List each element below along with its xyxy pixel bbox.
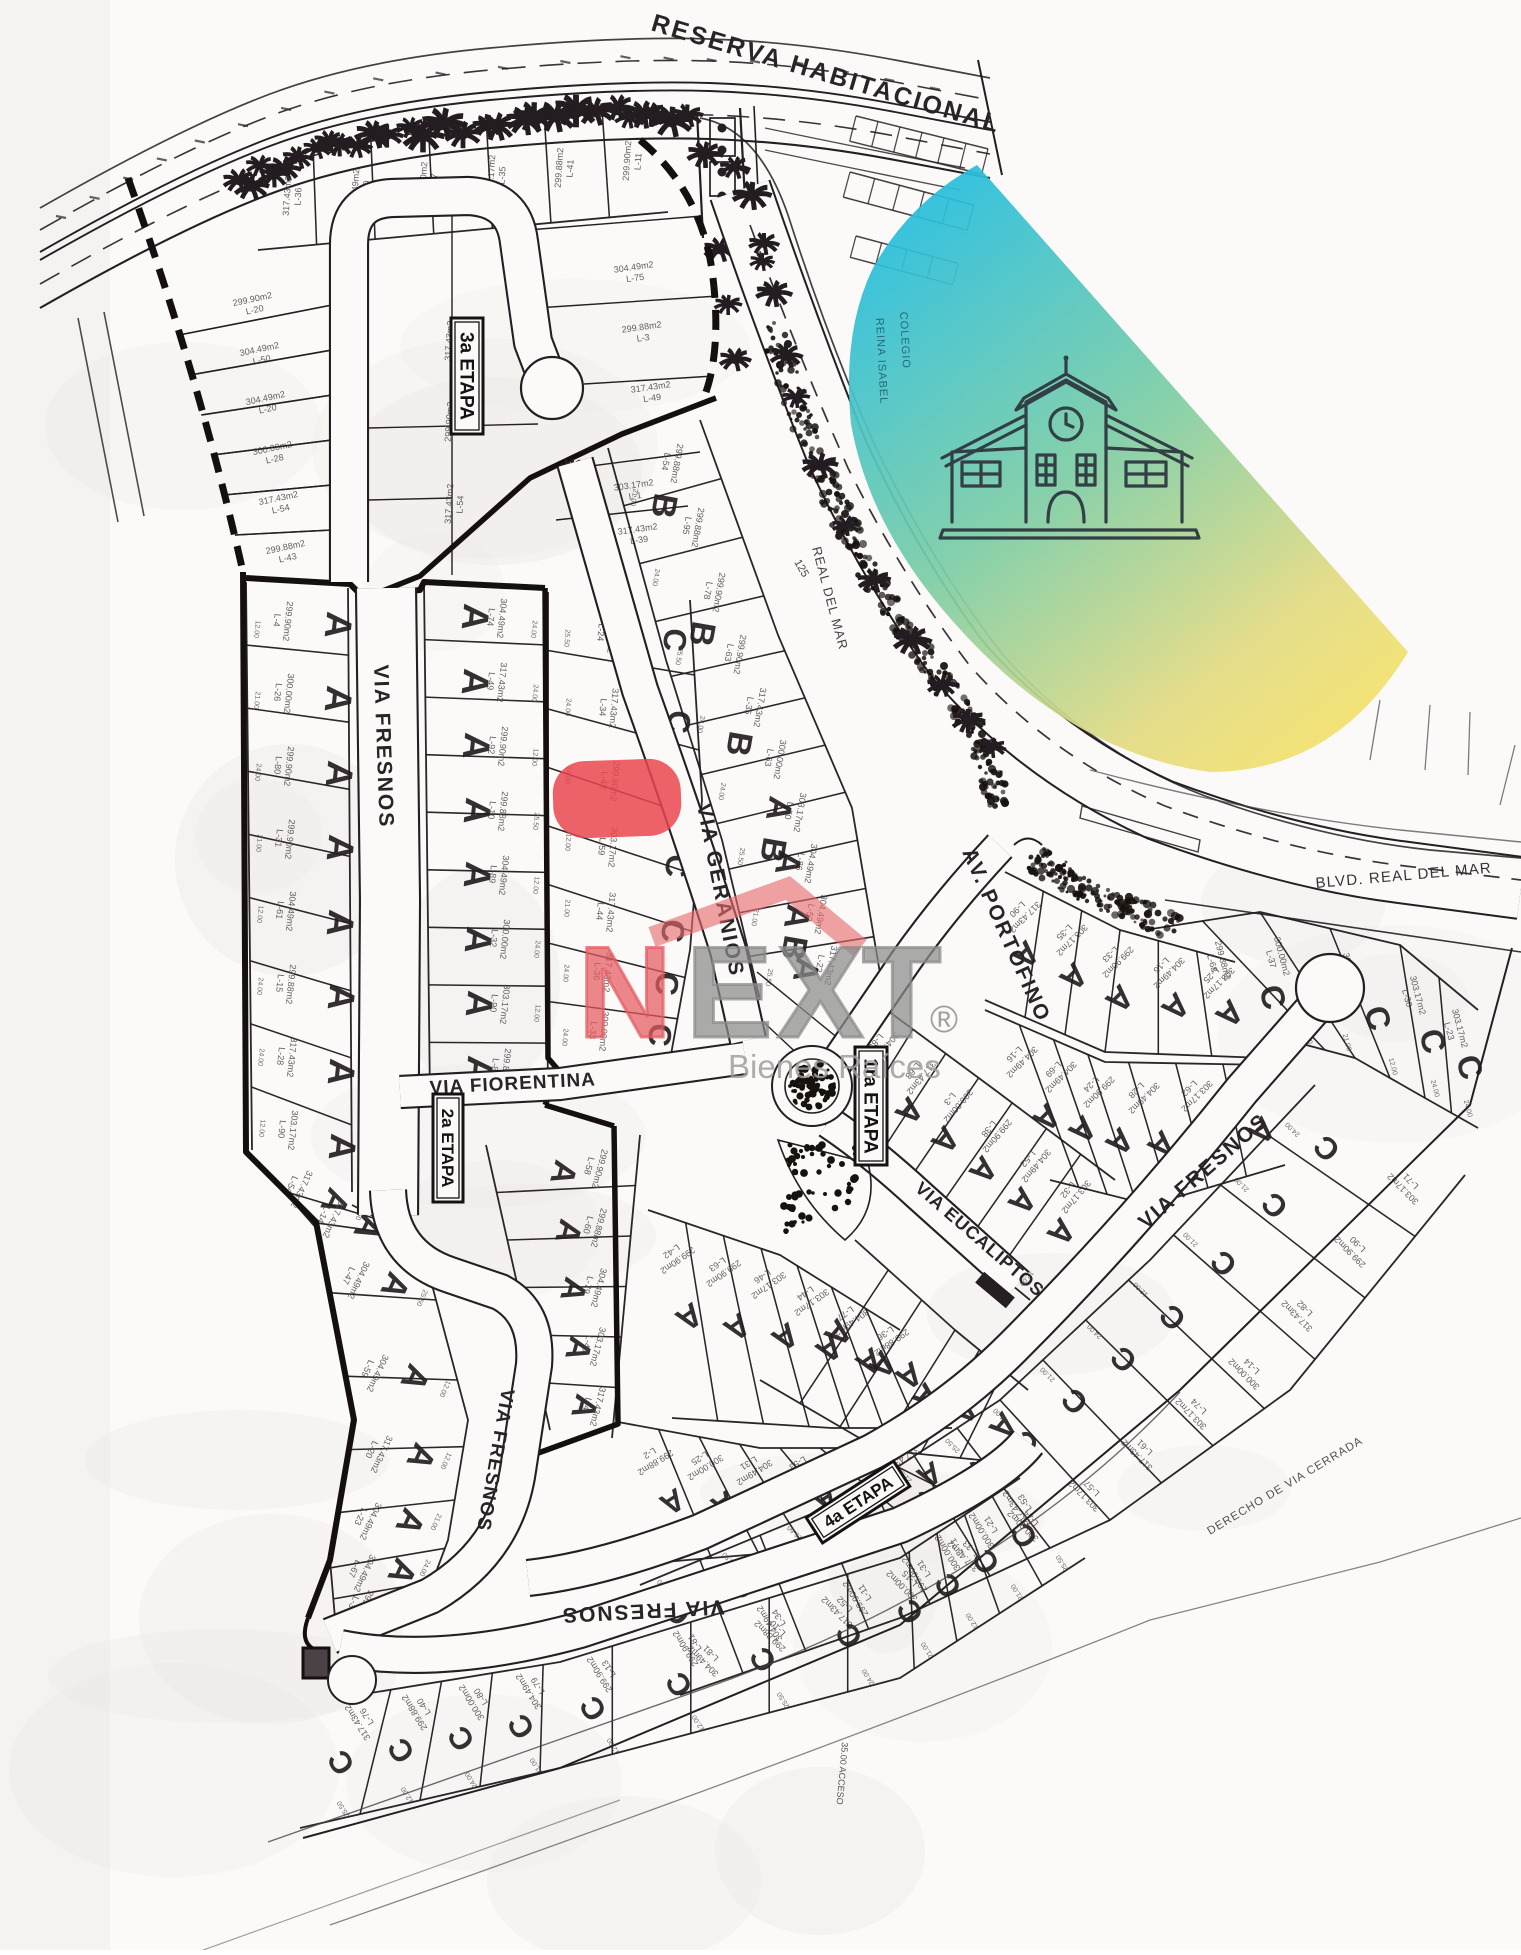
svg-text:L-92: L-92	[486, 736, 498, 755]
svg-text:A: A	[320, 1057, 364, 1088]
svg-text:2a ETAPA: 2a ETAPA	[438, 1109, 457, 1188]
svg-text:L-26: L-26	[272, 683, 284, 702]
svg-text:A: A	[319, 833, 363, 864]
svg-text:L-80: L-80	[272, 756, 284, 775]
svg-text:L-15: L-15	[274, 974, 286, 993]
svg-text:L-36: L-36	[292, 187, 303, 206]
svg-text:Bienes Raíces: Bienes Raíces	[728, 1048, 941, 1085]
svg-text:L-61: L-61	[274, 901, 286, 920]
svg-text:3a ETAPA: 3a ETAPA	[455, 332, 476, 420]
svg-text:L-31: L-31	[273, 829, 285, 848]
svg-text:L-90: L-90	[276, 1120, 288, 1139]
svg-text:A: A	[318, 759, 362, 790]
svg-text:E: E	[686, 919, 773, 1065]
svg-text:L-59: L-59	[596, 837, 608, 856]
svg-text:A: A	[317, 610, 361, 641]
svg-text:T: T	[862, 919, 941, 1065]
svg-text:L-44: L-44	[594, 902, 606, 921]
svg-text:A: A	[320, 982, 364, 1013]
svg-text:A: A	[319, 908, 363, 939]
svg-text:L-41: L-41	[564, 159, 575, 178]
svg-text:X: X	[777, 919, 864, 1065]
svg-text:L-34: L-34	[597, 698, 609, 717]
svg-text:L-10: L-10	[486, 801, 498, 820]
svg-text:L-32: L-32	[488, 929, 500, 948]
svg-text:C: C	[656, 627, 694, 653]
svg-text:L-54: L-54	[454, 495, 465, 514]
svg-text:®: ®	[930, 999, 958, 1041]
svg-text:L-3: L-3	[636, 332, 650, 344]
svg-text:L-49: L-49	[485, 672, 497, 691]
svg-text:L-28: L-28	[275, 1047, 287, 1066]
svg-text:L-4: L-4	[271, 613, 282, 627]
svg-text:N: N	[578, 919, 672, 1065]
svg-text:L-89: L-89	[487, 865, 499, 884]
svg-text:L-74: L-74	[485, 608, 497, 627]
svg-text:A: A	[317, 684, 361, 715]
svg-text:L-11: L-11	[632, 153, 643, 171]
svg-text:L-90: L-90	[488, 994, 500, 1013]
